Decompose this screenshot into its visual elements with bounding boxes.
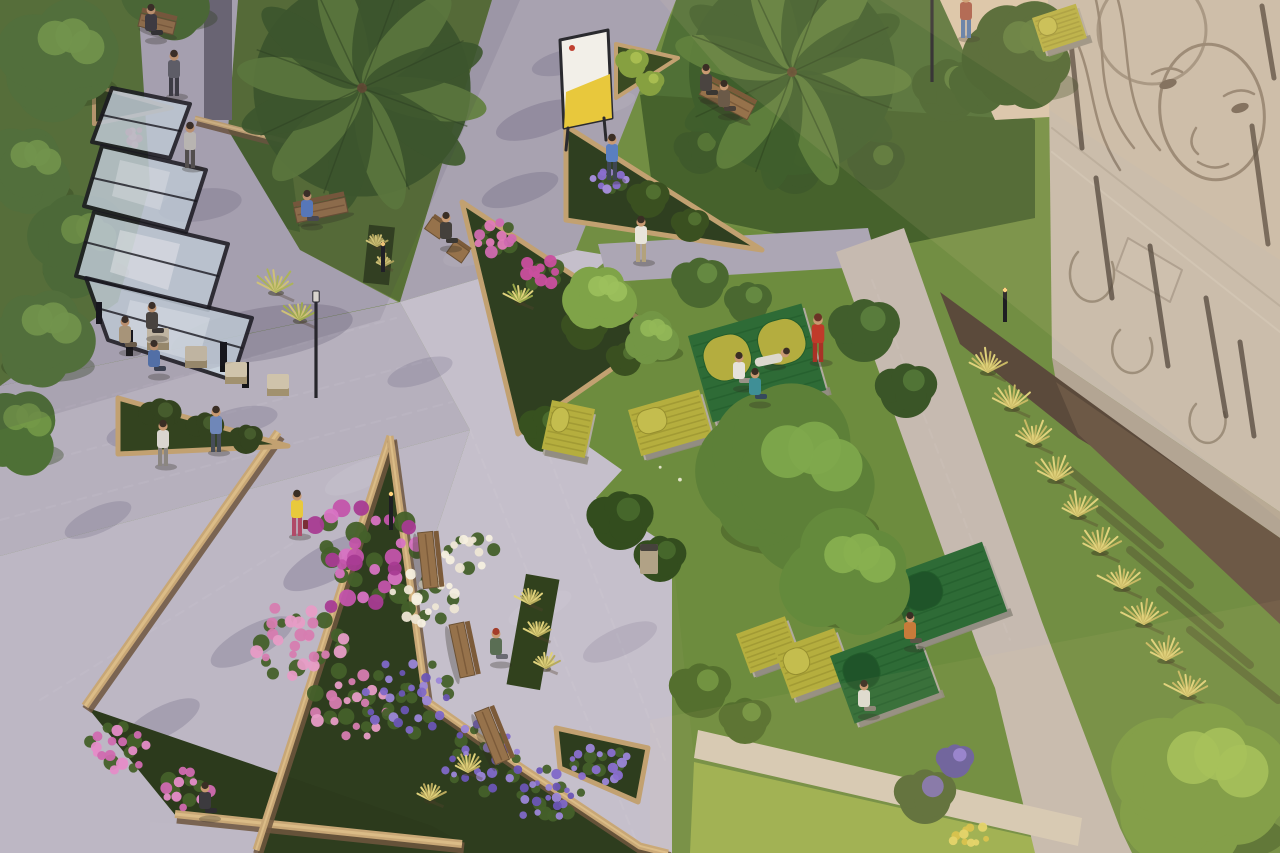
sign-dot: [569, 45, 575, 51]
furniture-bin: [640, 544, 658, 574]
furniture-stool: [267, 374, 289, 396]
plaza-scene-canvas: [0, 0, 1280, 853]
sign-leg: [566, 128, 568, 150]
sign-leg: [604, 118, 606, 140]
furniture-stool: [225, 362, 247, 384]
furniture-bollard: [389, 492, 393, 530]
plaza-aerial-rendering: Aerial 3D architectural rendering of a l…: [0, 0, 1280, 853]
